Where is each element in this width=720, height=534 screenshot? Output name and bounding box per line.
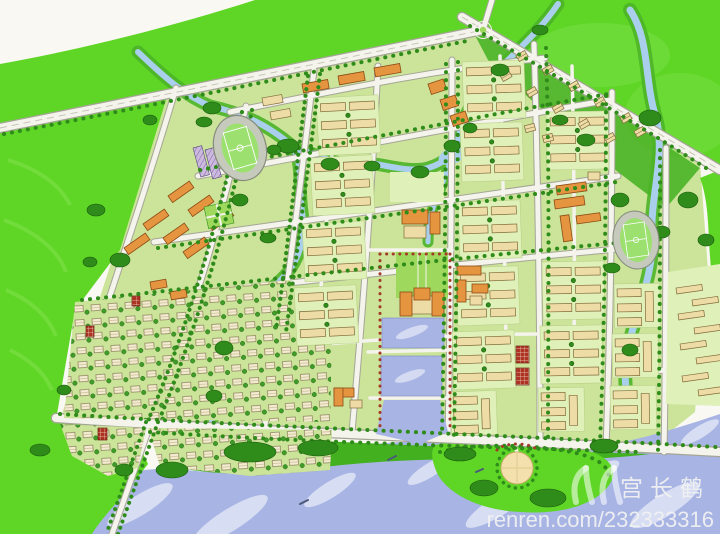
map-canvas: 宫长鹤 renren.com/232333316	[0, 0, 720, 534]
civic-complex	[400, 288, 444, 316]
industrial-zone	[666, 264, 720, 406]
roundabout-island	[480, 27, 486, 33]
master-plan-image: 宫长鹤 renren.com/232333316	[0, 0, 720, 534]
villa-district	[60, 280, 332, 476]
watermark-url: renren.com/232333316	[487, 507, 715, 532]
watermark-owner: 宫长鹤	[620, 475, 710, 501]
